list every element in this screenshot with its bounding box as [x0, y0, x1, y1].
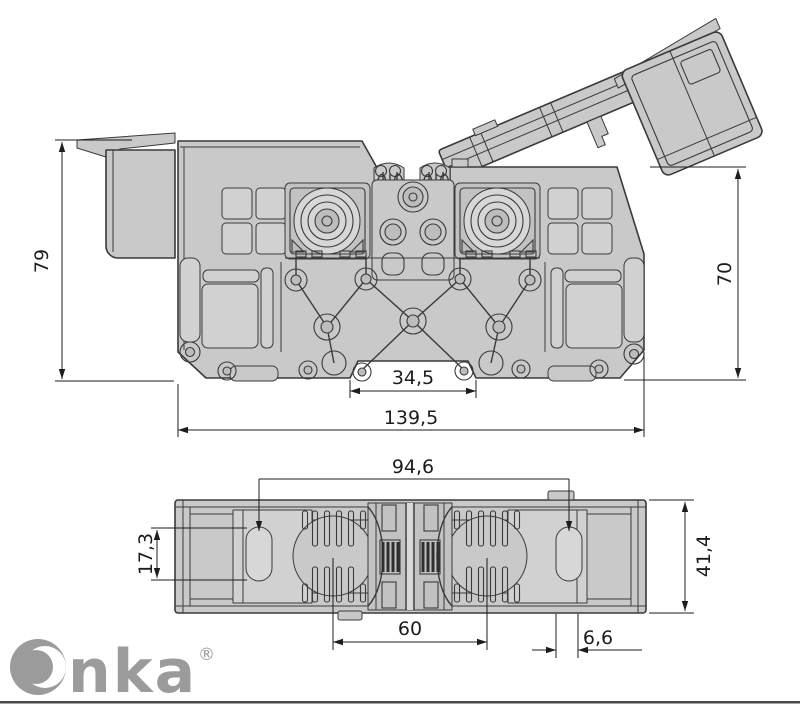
marking-slot-right [556, 527, 582, 581]
flange-body [106, 150, 175, 258]
bottom-tab [338, 611, 362, 620]
dim-label-socket-span: 94,6 [392, 456, 434, 478]
logo-o-glyph [10, 639, 66, 695]
dim-overall-depth: 41,4 [649, 500, 715, 613]
dim-label-overall-depth: 41,4 [693, 535, 715, 577]
footer-rule [0, 701, 800, 704]
marking-slot-left [246, 527, 272, 581]
dim-label-overall-width: 139,5 [384, 407, 438, 429]
dim-label-body-height: 70 [714, 262, 736, 286]
dim-label-overall-height: 79 [31, 249, 53, 273]
brand-logo: nka ® [10, 637, 215, 707]
drawing-page: 79 70 34,5 139,5 [0, 0, 800, 709]
cover-latch-hook [587, 116, 612, 148]
dim-label-slot-height: 17,3 [135, 533, 157, 575]
side-view: 79 70 34,5 139,5 [31, 18, 765, 437]
center-contact-module [368, 503, 452, 610]
dim-label-module-span: 60 [398, 618, 422, 640]
registered-trademark: ® [198, 645, 215, 665]
center-module [372, 180, 454, 280]
dim-label-rail-notch-width: 34,5 [392, 367, 434, 389]
right-clamp-spring [455, 183, 540, 259]
left-clamp-spring [285, 183, 370, 259]
technical-drawing: 79 70 34,5 139,5 [0, 0, 800, 709]
bottom-view: 94,6 17,3 41,4 60 [135, 456, 715, 658]
dim-rail-notch-width: 34,5 [350, 367, 476, 398]
dim-label-slot-width: 6,6 [583, 627, 613, 649]
dim-slot-width: 6,6 [532, 614, 642, 658]
top-tab [452, 159, 468, 167]
logo-wordmark: nka [68, 637, 197, 707]
top-tab-bottom-view [548, 491, 574, 500]
left-flange [77, 133, 175, 258]
